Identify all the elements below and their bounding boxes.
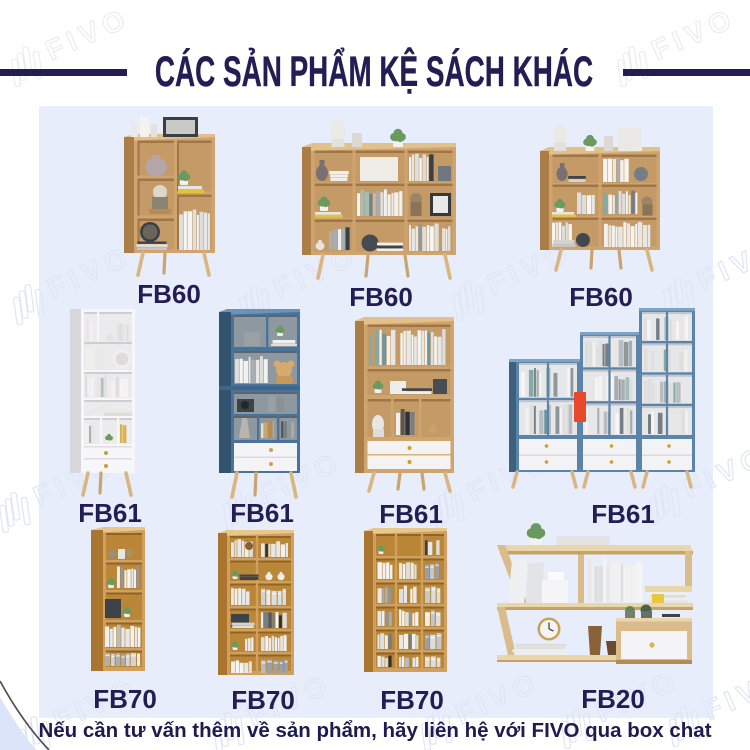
svg-text:FIVO: FIVO [693,232,750,297]
svg-text:FIVO: FIVO [647,2,741,67]
svg-text:FIVO: FIVO [43,240,137,305]
svg-text:FIVO: FIVO [699,662,750,727]
svg-text:FIVO: FIVO [41,2,135,67]
